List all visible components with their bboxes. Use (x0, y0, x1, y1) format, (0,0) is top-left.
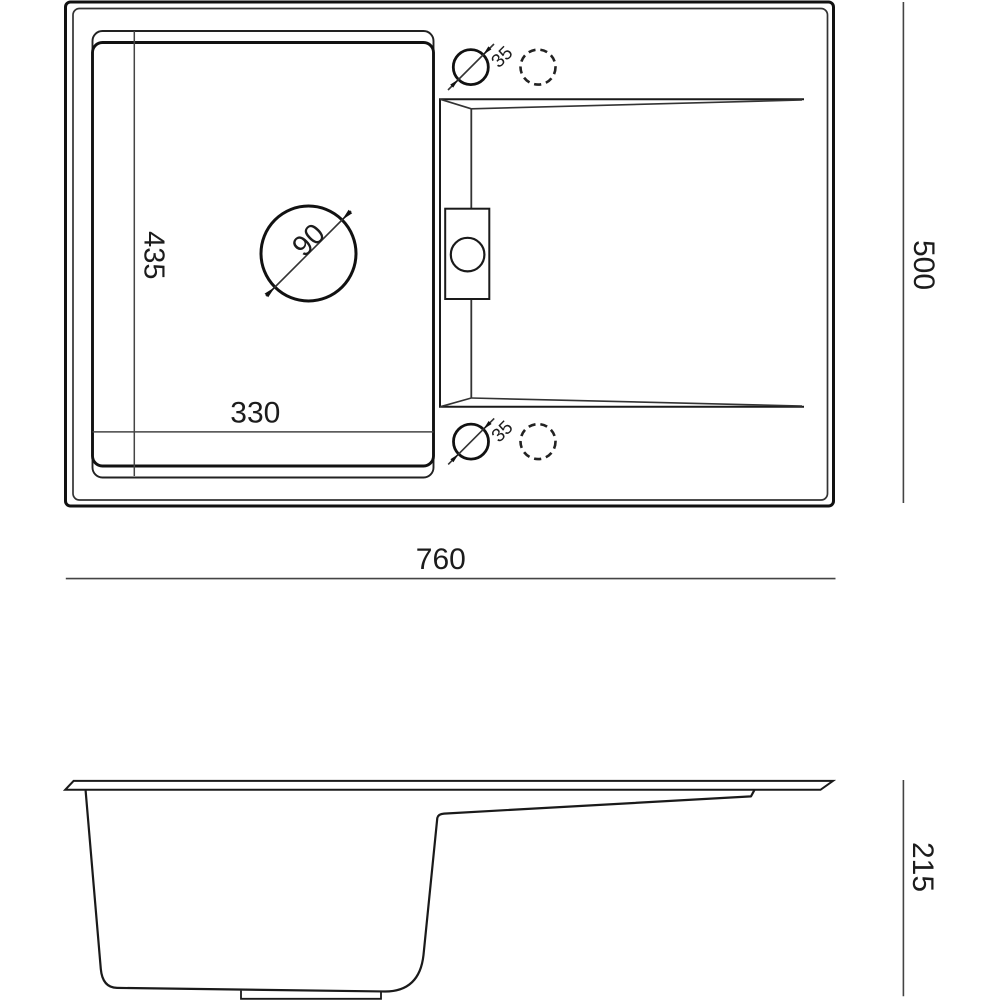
svg-text:760: 760 (416, 543, 466, 576)
svg-text:500: 500 (907, 240, 940, 290)
svg-text:435: 435 (138, 231, 170, 279)
svg-text:215: 215 (906, 842, 939, 892)
svg-text:330: 330 (230, 397, 280, 430)
